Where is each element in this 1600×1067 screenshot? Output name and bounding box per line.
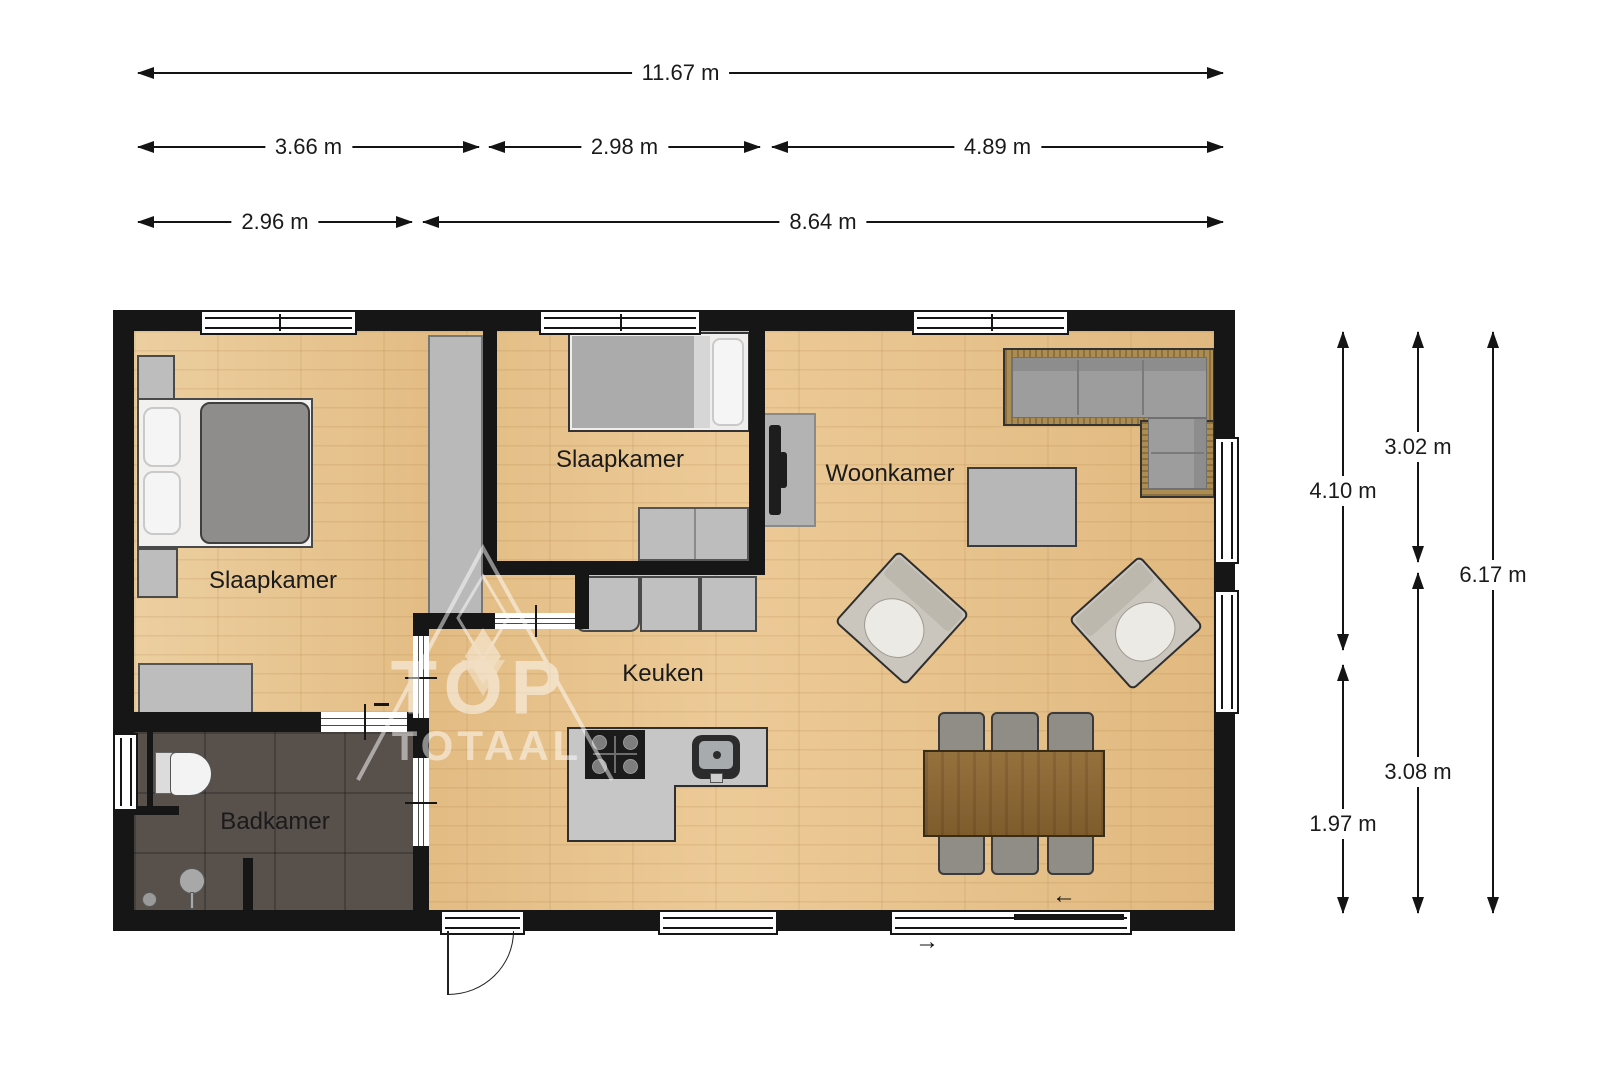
dimension-label: 4.89 m — [954, 133, 1041, 161]
dimension-label: 2.96 m — [231, 208, 318, 236]
faucet — [710, 773, 723, 783]
wall-bedroom2-living — [749, 330, 765, 575]
room-label-bedroom1: Slaapkamer — [209, 567, 337, 595]
wall-shower-stub — [243, 858, 253, 911]
window — [113, 733, 138, 811]
dimension-label: 11.67 m — [632, 59, 730, 87]
sink-drain — [713, 751, 721, 759]
duvet — [200, 402, 310, 544]
interior-door — [413, 633, 429, 721]
burner — [592, 735, 607, 750]
kitchen-island-leg — [567, 785, 676, 842]
wall-stub — [575, 575, 589, 615]
tall-wardrobe — [428, 335, 483, 615]
floorplan-canvas: 11.67 m 3.66 m 2.98 m 4.89 m 2.96 m 8.64… — [0, 0, 1600, 1067]
bathroom-door — [413, 755, 429, 849]
wall-toilet-partition — [147, 732, 153, 812]
window — [1214, 590, 1239, 714]
wall-bedroom1-bedroom2 — [483, 330, 497, 575]
window — [658, 910, 778, 935]
window — [539, 310, 701, 335]
burner — [592, 759, 607, 774]
kitchen-counter — [640, 576, 700, 632]
dimension-label: 2.98 m — [581, 133, 668, 161]
dimension-label: 1.97 m — [1301, 809, 1384, 839]
room-label-kitchen: Keuken — [622, 660, 703, 688]
sofa-seam — [1077, 360, 1079, 415]
stove — [585, 730, 645, 779]
dimension-label: 8.64 m — [779, 208, 866, 236]
tv-center — [779, 452, 787, 488]
mattress — [572, 336, 694, 428]
wall-left — [113, 310, 134, 931]
window — [1214, 437, 1239, 564]
wardrobe — [638, 507, 749, 561]
pillow — [143, 407, 181, 467]
entry-arrow-inside: ← — [1052, 882, 1076, 910]
nightstand — [137, 548, 178, 598]
shower-pole — [190, 892, 194, 909]
dimension-label: 3.02 m — [1376, 432, 1459, 462]
wall-toilet-stub — [133, 806, 179, 815]
toilet — [170, 752, 212, 796]
corner-sofa-chaise — [1148, 418, 1207, 489]
sofa-backrest — [1194, 419, 1206, 488]
dimension-label: 3.66 m — [265, 133, 352, 161]
sofa-seam — [1142, 360, 1144, 415]
sofa-backrest — [1013, 358, 1206, 371]
corner-sofa-seats — [1012, 357, 1207, 418]
sofa-seam — [1151, 452, 1204, 454]
window — [912, 310, 1069, 335]
nightstand — [137, 355, 175, 400]
burner — [623, 759, 638, 774]
dimension-label: 3.08 m — [1376, 757, 1459, 787]
sink — [692, 735, 740, 779]
pillow — [143, 471, 181, 535]
window — [200, 310, 357, 335]
kitchen-counter — [700, 576, 757, 632]
dining-table — [923, 750, 1105, 837]
burner — [623, 735, 638, 750]
pillow — [712, 338, 744, 426]
bed-sheet — [694, 336, 710, 428]
shower-head — [179, 868, 205, 894]
wall-dash-mark — [374, 703, 389, 706]
sliding-panel — [1014, 914, 1124, 920]
entrance-door-arc — [448, 931, 514, 995]
room-label-bedroom2: Slaapkamer — [556, 446, 684, 474]
interior-door — [492, 613, 578, 629]
coffee-table — [967, 467, 1077, 547]
entry-arrow-outside: → — [915, 928, 939, 956]
dimension-label: 6.17 m — [1451, 560, 1534, 590]
dimension-label: 4.10 m — [1301, 476, 1384, 506]
bathroom-top-door — [318, 712, 410, 732]
shower-drain — [142, 892, 157, 907]
stove-grid — [614, 736, 616, 773]
room-label-living: Woonkamer — [826, 460, 955, 488]
wall-bedroom2-kitchen — [483, 561, 765, 575]
wardrobe-divider — [694, 509, 696, 559]
room-label-bathroom: Badkamer — [220, 808, 329, 836]
